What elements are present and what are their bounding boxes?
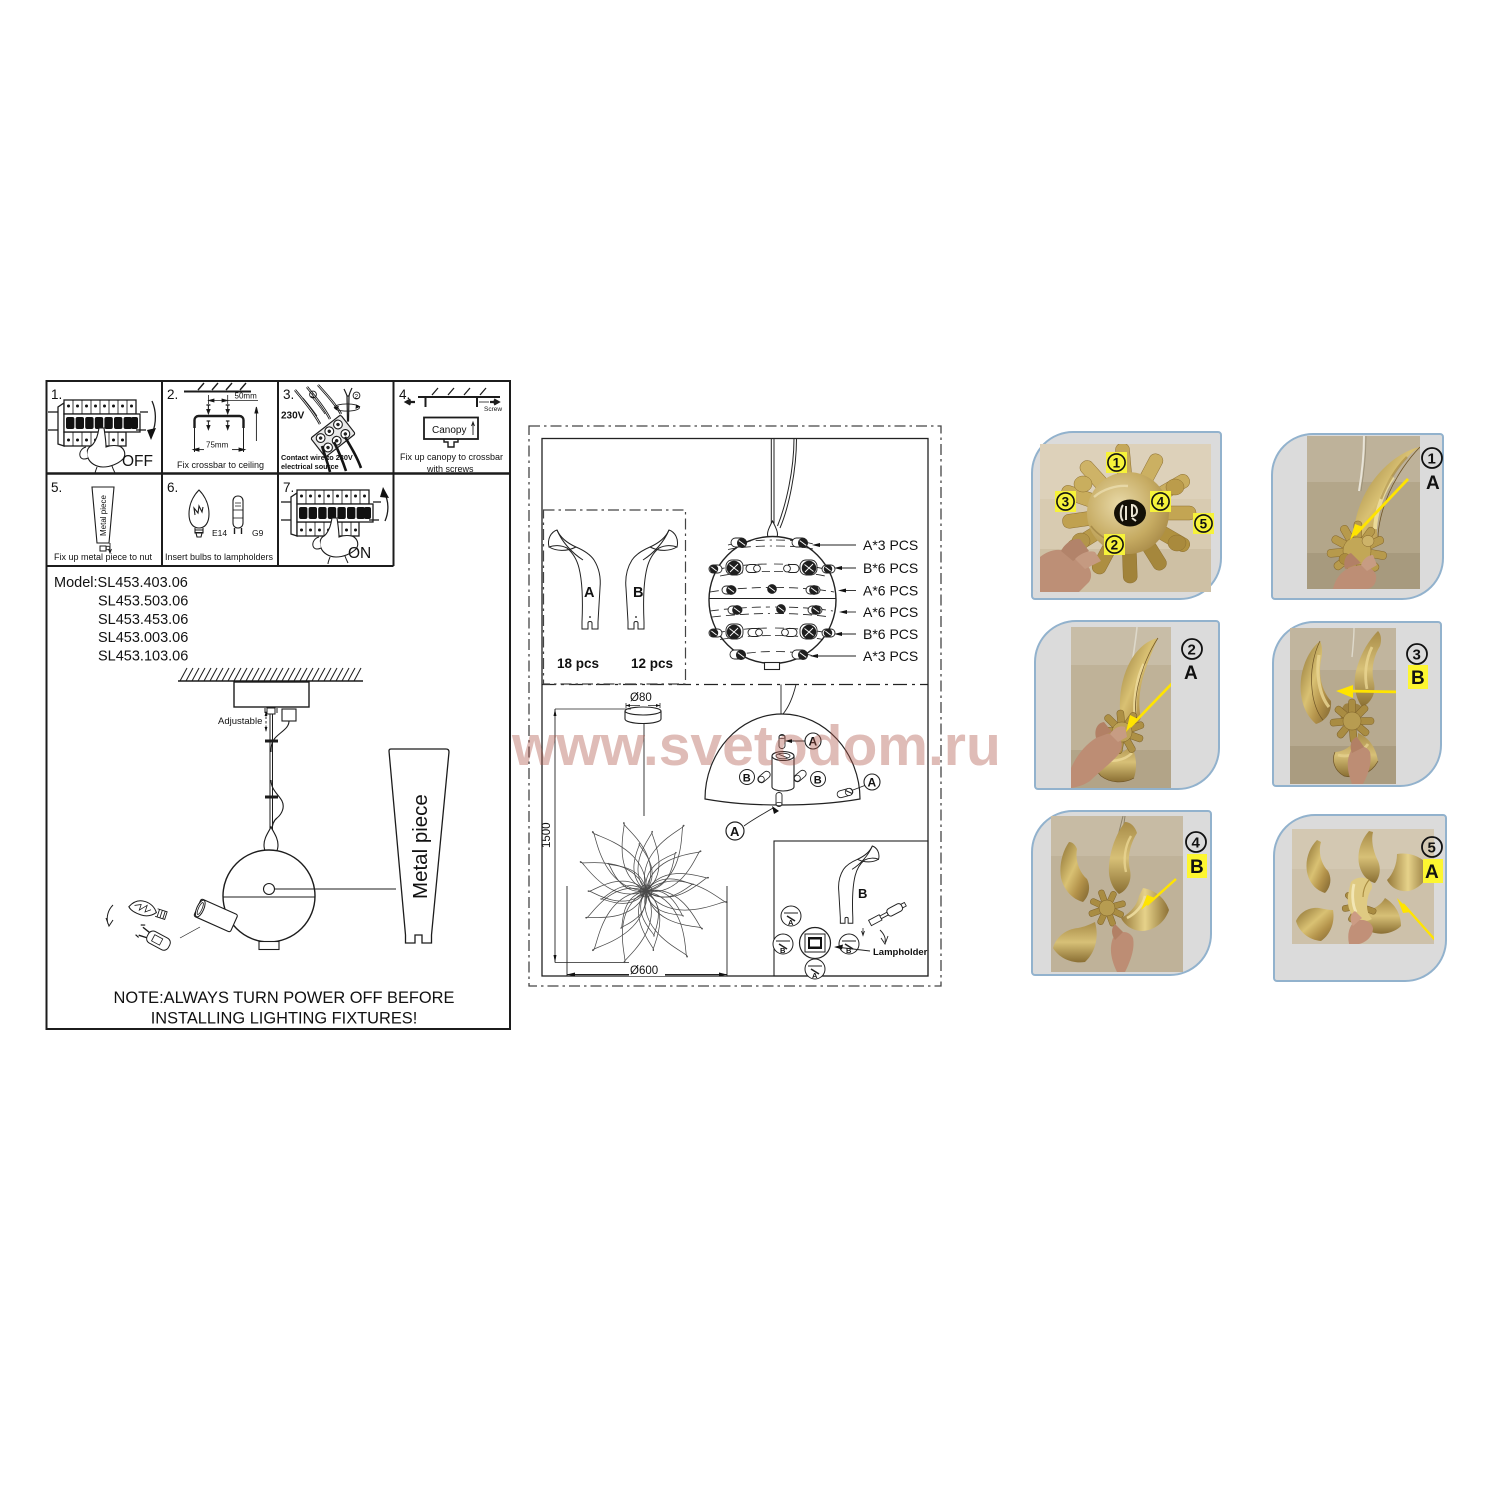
svg-text:SL453.503.06: SL453.503.06	[98, 593, 188, 609]
svg-text:1: 1	[311, 392, 315, 399]
svg-text:SL453.453.06: SL453.453.06	[98, 612, 188, 628]
svg-text:Fix up canopy to crossbar: Fix up canopy to crossbar	[400, 452, 503, 462]
svg-text:electrical source: electrical source	[281, 462, 339, 471]
svg-text:Lampholder: Lampholder	[873, 947, 928, 958]
svg-text:B: B	[1190, 857, 1204, 878]
svg-text:A: A	[730, 824, 740, 839]
svg-text:50mm: 50mm	[235, 392, 258, 401]
svg-text:A*3 PCS: A*3 PCS	[863, 537, 918, 553]
svg-text:A*6 PCS: A*6 PCS	[863, 604, 918, 620]
svg-text:A: A	[788, 918, 794, 927]
svg-text:Ø80: Ø80	[630, 692, 652, 704]
svg-text:E14: E14	[212, 528, 227, 538]
svg-text:B: B	[858, 886, 867, 901]
svg-text:Adjustable: Adjustable	[218, 716, 262, 727]
svg-text:Insert bulbs to lampholders: Insert bulbs to lampholders	[165, 552, 274, 562]
svg-text:SL453.003.06: SL453.003.06	[98, 630, 188, 646]
svg-text:A: A	[584, 585, 595, 601]
svg-text:Contact wire to 230V: Contact wire to 230V	[281, 453, 353, 462]
svg-text:3.: 3.	[283, 387, 294, 402]
svg-text:Screw: Screw	[484, 406, 502, 413]
svg-text:12 pcs: 12 pcs	[631, 656, 673, 671]
svg-text:2.: 2.	[167, 387, 178, 402]
svg-text:Ø600: Ø600	[630, 965, 658, 977]
svg-text:Fix crossbar to ceiling: Fix crossbar to ceiling	[177, 460, 264, 470]
svg-text:7.: 7.	[283, 480, 294, 495]
svg-text:OFF: OFF	[122, 453, 153, 470]
svg-text:with screws: with screws	[426, 464, 474, 474]
svg-text:Metal piece: Metal piece	[99, 495, 108, 536]
svg-text:Model:SL453.403.06: Model:SL453.403.06	[54, 575, 188, 591]
svg-text:6.: 6.	[167, 480, 178, 495]
svg-text:5: 5	[1200, 516, 1208, 531]
svg-text:NOTE:ALWAYS TURN POWER OFF BEF: NOTE:ALWAYS TURN POWER OFF BEFORE	[114, 989, 455, 1007]
svg-text:1.: 1.	[51, 387, 62, 402]
svg-text:3: 3	[1062, 494, 1070, 509]
svg-text:5: 5	[1428, 840, 1436, 857]
svg-text:A: A	[812, 971, 818, 980]
svg-text:ON: ON	[348, 545, 371, 562]
svg-text:A*6 PCS: A*6 PCS	[863, 583, 918, 599]
svg-text:B: B	[780, 946, 786, 955]
svg-text:SL453.103.06: SL453.103.06	[98, 649, 188, 665]
svg-text:Metal piece: Metal piece	[409, 794, 432, 899]
svg-text:B*6 PCS: B*6 PCS	[863, 560, 918, 576]
svg-text:B: B	[1411, 668, 1425, 689]
svg-text:B: B	[846, 946, 852, 955]
svg-text:Canopy: Canopy	[432, 425, 466, 436]
svg-text:A*3 PCS: A*3 PCS	[863, 648, 918, 664]
svg-text:1: 1	[1113, 455, 1121, 470]
svg-text:Fix up metal piece to nut: Fix up metal piece to nut	[54, 552, 153, 562]
svg-text:B: B	[633, 585, 643, 601]
svg-text:B*6 PCS: B*6 PCS	[863, 626, 918, 642]
svg-text:A: A	[1426, 473, 1440, 494]
svg-text:4: 4	[1157, 494, 1165, 509]
svg-text:18 pcs: 18 pcs	[557, 656, 599, 671]
svg-text:2: 2	[355, 393, 359, 400]
svg-text:2: 2	[1111, 537, 1119, 552]
svg-text:A: A	[1184, 663, 1198, 684]
svg-text:5.: 5.	[51, 480, 62, 495]
svg-text:75mm: 75mm	[206, 441, 229, 450]
svg-text:G9: G9	[252, 528, 264, 538]
svg-text:1: 1	[1428, 451, 1436, 468]
svg-text:2: 2	[1188, 642, 1196, 659]
svg-text:3: 3	[1413, 647, 1421, 664]
svg-text:1500: 1500	[541, 822, 553, 848]
svg-text:4: 4	[1192, 835, 1201, 852]
svg-text:A: A	[1425, 862, 1439, 883]
svg-text:INSTALLING LIGHTING FIXTURES!: INSTALLING LIGHTING FIXTURES!	[151, 1010, 418, 1028]
svg-text:230V: 230V	[281, 411, 305, 422]
